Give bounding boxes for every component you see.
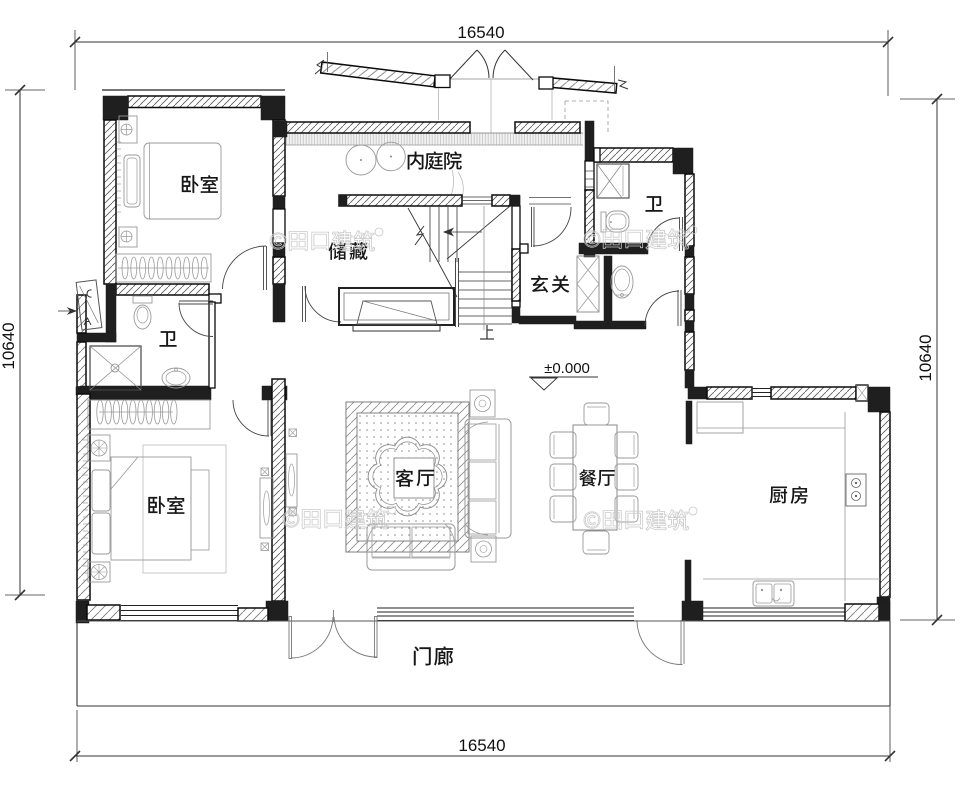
- svg-text:±0.000: ±0.000: [544, 360, 590, 377]
- svg-text:10640: 10640: [0, 322, 18, 369]
- svg-text:10640: 10640: [916, 334, 935, 381]
- svg-text:16540: 16540: [457, 23, 504, 42]
- svg-text:16540: 16540: [458, 736, 505, 755]
